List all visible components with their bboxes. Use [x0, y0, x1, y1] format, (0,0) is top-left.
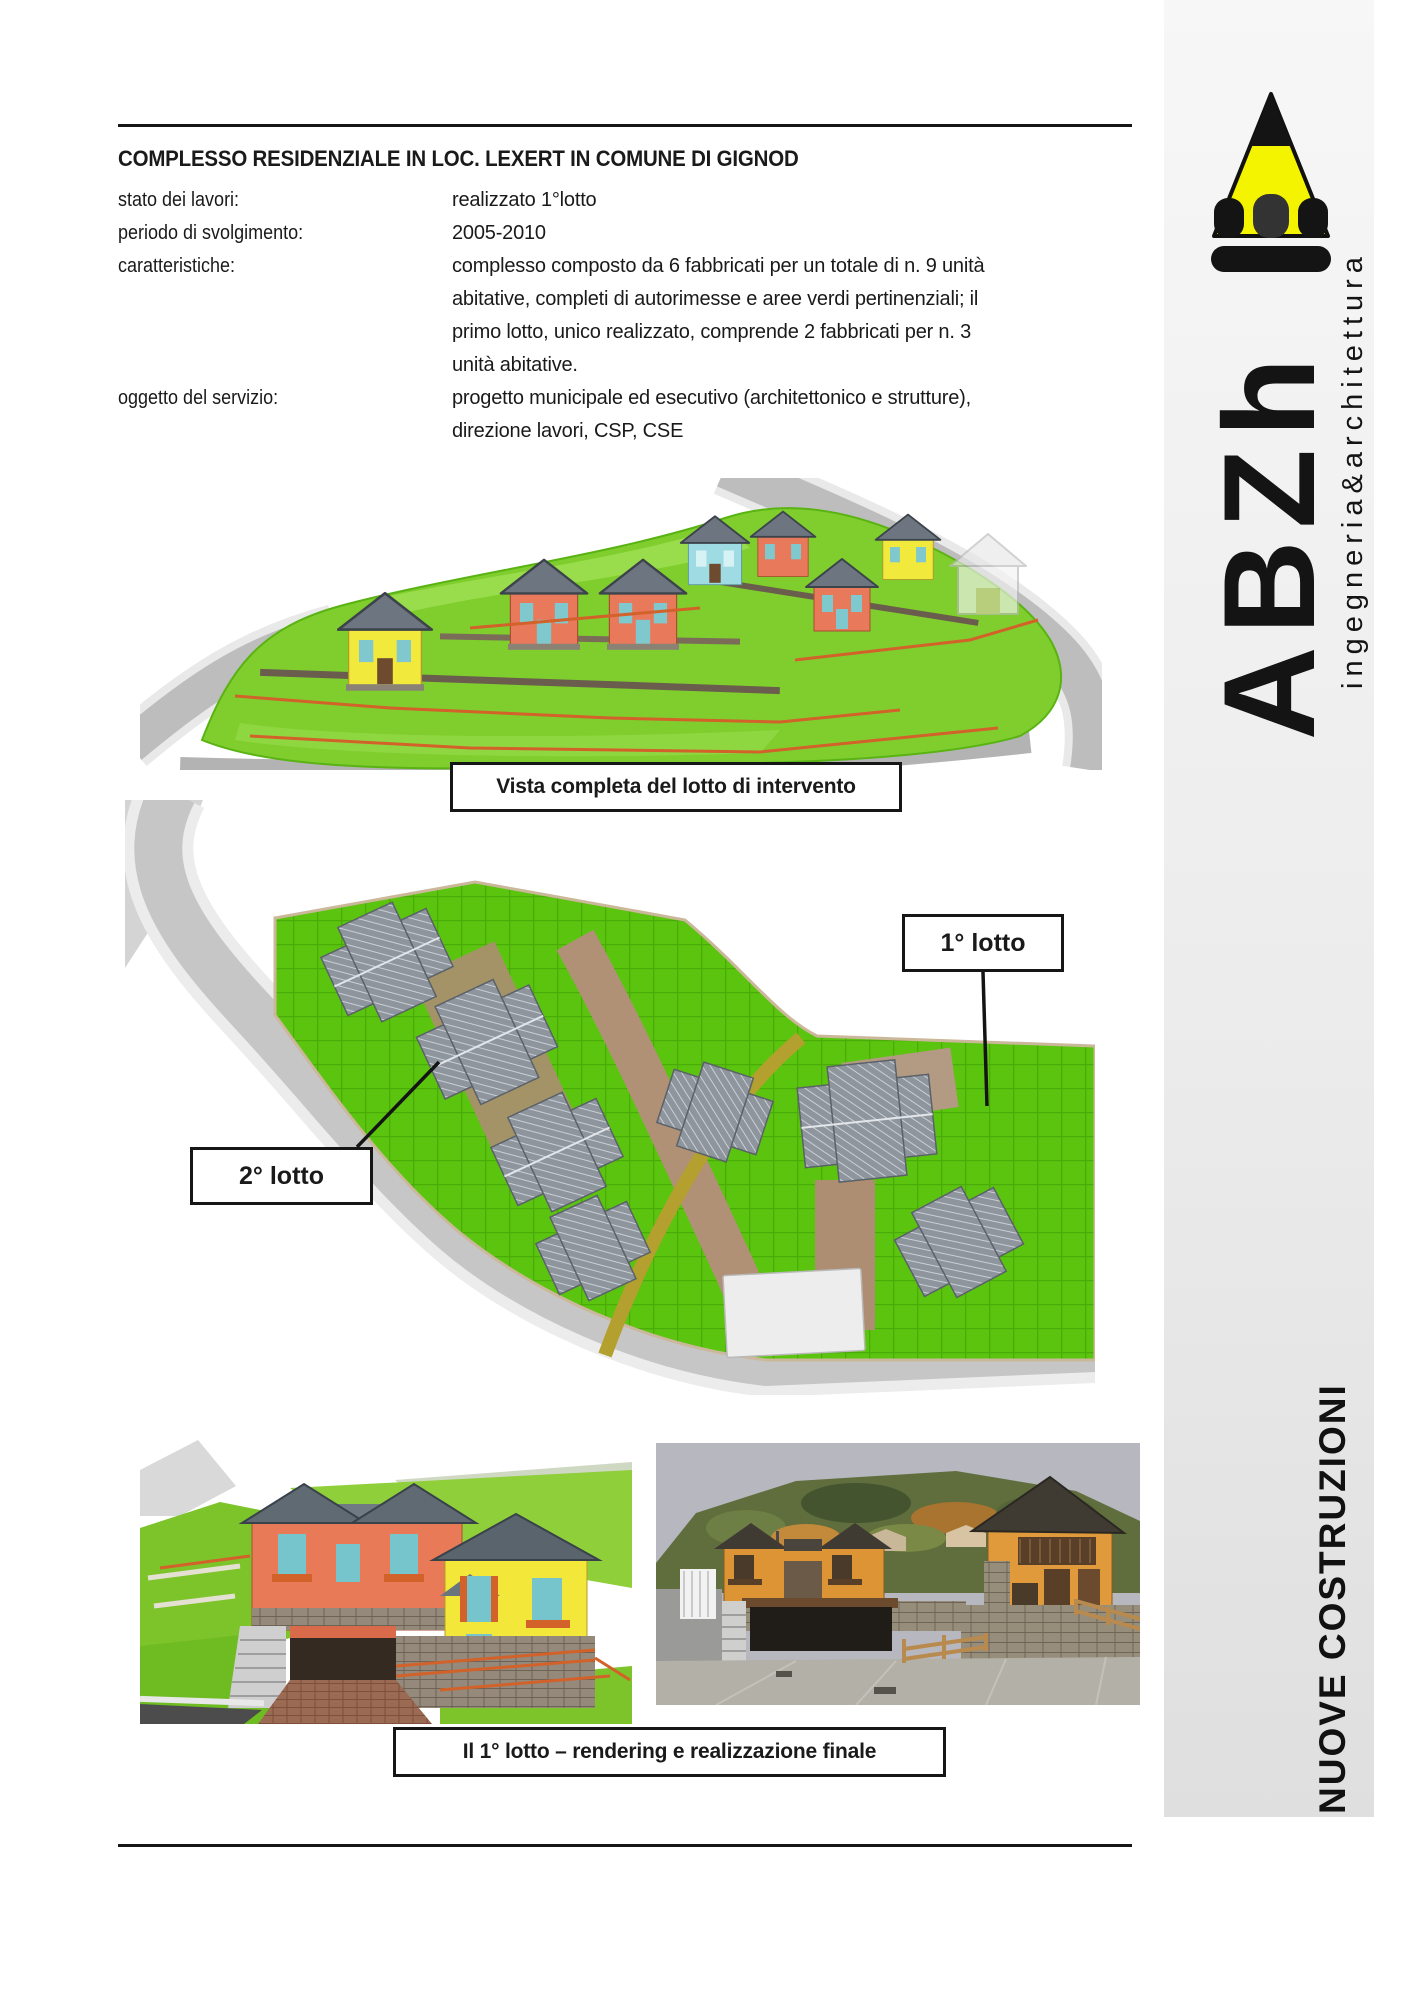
label-lot1-box: 1° lotto	[902, 914, 1064, 972]
photo-lot1-illustration	[656, 1443, 1140, 1705]
info-row-service: oggetto del servizio: progetto municipal…	[118, 382, 1008, 448]
caption-overview: Vista completa del lotto di intervento	[450, 762, 902, 812]
sidebar-footer-text: NUOVE COSTRUZIONI	[1312, 1402, 1352, 1814]
render-overview-illustration	[140, 478, 1102, 770]
info-row-period: periodo di svolgimento: 2005-2010	[118, 217, 1008, 250]
info-label: caratteristiche:	[118, 250, 452, 283]
site-plan-illustration	[125, 800, 1095, 1395]
info-row-features: caratteristiche: complesso composto da 6…	[118, 250, 1008, 382]
render-overview-image	[140, 478, 1102, 770]
caption-first-lot: Il 1° lotto – rendering e realizzazione …	[393, 1727, 946, 1777]
logo-tagline: ingegneria&architettura	[1337, 183, 1369, 757]
photo-lot1-image	[656, 1443, 1140, 1705]
label-lot2-box: 2° lotto	[190, 1147, 373, 1205]
logo-wordmark: ABZh	[1196, 346, 1342, 741]
info-value: complesso composto da 6 fabbricati per u…	[452, 250, 998, 382]
info-value: progetto municipale ed esecutivo (archit…	[452, 382, 998, 448]
info-value: 2005-2010	[452, 217, 998, 250]
render-lot1-image	[140, 1428, 632, 1724]
portfolio-page: COMPLESSO RESIDENZIALE IN LOC. LEXERT IN…	[0, 0, 1414, 2000]
top-rule	[118, 124, 1132, 127]
project-info: stato dei lavori: realizzato 1°lotto per…	[118, 184, 1008, 448]
pencil-icon	[1211, 94, 1331, 272]
info-row-status: stato dei lavori: realizzato 1°lotto	[118, 184, 1008, 217]
bottom-rule	[118, 1844, 1132, 1847]
render-lot1-illustration	[140, 1428, 632, 1724]
info-label: periodo di svolgimento:	[118, 217, 452, 250]
info-value: realizzato 1°lotto	[452, 184, 998, 217]
site-plan-image	[125, 800, 1095, 1395]
info-label: stato dei lavori:	[118, 184, 452, 217]
page-title: COMPLESSO RESIDENZIALE IN LOC. LEXERT IN…	[118, 146, 799, 172]
info-label: oggetto del servizio:	[118, 382, 452, 415]
